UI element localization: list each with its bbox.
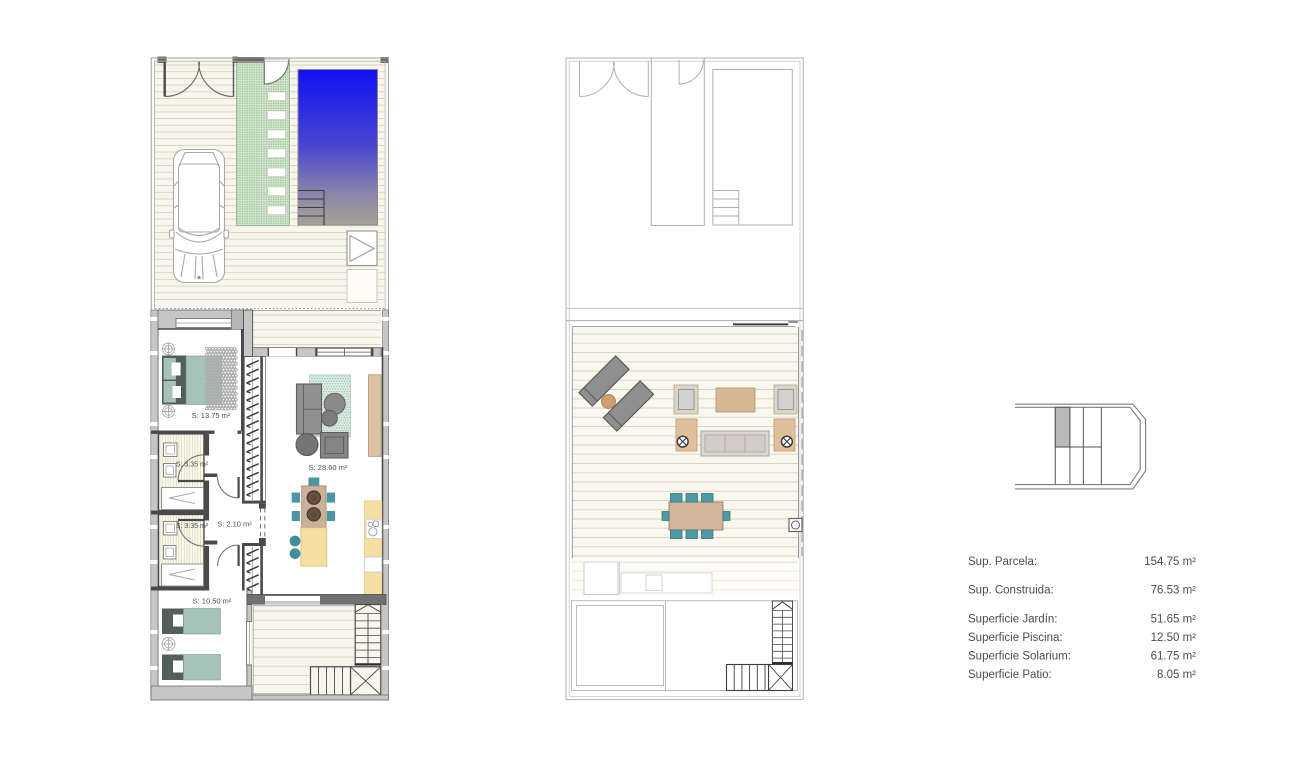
svg-text:S: 28.60 m²: S: 28.60 m²: [309, 463, 348, 472]
svg-text:Superficie Jardín:: Superficie Jardín:: [968, 614, 1058, 626]
svg-text:51.65 m²: 51.65 m²: [1151, 614, 1197, 626]
svg-text:61.75 m²: 61.75 m²: [1151, 651, 1197, 663]
svg-text:Sup. Construida:: Sup. Construida:: [968, 585, 1054, 597]
svg-text:154.75 m²: 154.75 m²: [1144, 556, 1196, 568]
svg-text:Superficie Patio:: Superficie Patio:: [968, 669, 1052, 681]
svg-text:76.53 m²: 76.53 m²: [1151, 585, 1197, 597]
svg-text:S: 3.35 m²: S: 3.35 m²: [176, 523, 209, 530]
svg-text:12.50 m²: 12.50 m²: [1151, 632, 1197, 644]
svg-text:S: 13.75 m²: S: 13.75 m²: [192, 411, 231, 420]
svg-text:Superficie Solarium:: Superficie Solarium:: [968, 651, 1071, 663]
svg-text:8.05 m²: 8.05 m²: [1157, 669, 1196, 681]
svg-text:S: 10.50 m²: S: 10.50 m²: [193, 597, 232, 606]
svg-text:Superficie Piscina:: Superficie Piscina:: [968, 632, 1063, 644]
svg-text:S: 3.35 m²: S: 3.35 m²: [176, 462, 209, 469]
svg-text:Sup. Parcela:: Sup. Parcela:: [968, 556, 1037, 568]
svg-text:S: 2.10 m²: S: 2.10 m²: [217, 520, 252, 529]
